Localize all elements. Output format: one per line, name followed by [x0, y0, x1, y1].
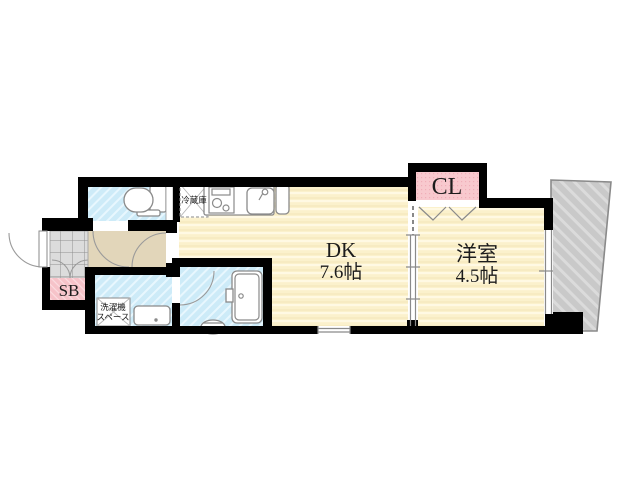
floorplan-drawing: DK 7.6帖 洋室 4.5帖 CL SB 冷蔵庫 洗濯機 スペース	[0, 0, 640, 480]
floorplan-canvas: DK 7.6帖 洋室 4.5帖 CL SB 冷蔵庫 洗濯機 スペース	[0, 0, 640, 480]
western-room-size: 4.5帖	[456, 265, 499, 287]
bathtub	[226, 271, 262, 323]
closet-label: CL	[432, 174, 463, 200]
kitchen-sink	[247, 188, 274, 214]
closet-opening	[416, 200, 479, 207]
shoebox-label: SB	[59, 281, 80, 300]
western-room-label: 洋室	[456, 242, 498, 266]
dk-room-size: 7.6帖	[320, 261, 363, 283]
hallway	[88, 231, 166, 267]
washer-space-label-2: スペース	[97, 312, 130, 322]
refrigerator-label: 冷蔵庫	[181, 195, 207, 205]
sliding-door-partition	[406, 206, 420, 326]
dk-room-label: DK	[326, 238, 356, 262]
pipe-space	[166, 183, 173, 221]
balcony-hatch-area	[551, 180, 611, 331]
entrance-door	[9, 231, 47, 267]
washer-space-label-1: 洗濯機	[100, 302, 126, 312]
kitchen-counter	[204, 183, 289, 215]
window	[318, 326, 350, 334]
washbasin	[134, 306, 170, 325]
